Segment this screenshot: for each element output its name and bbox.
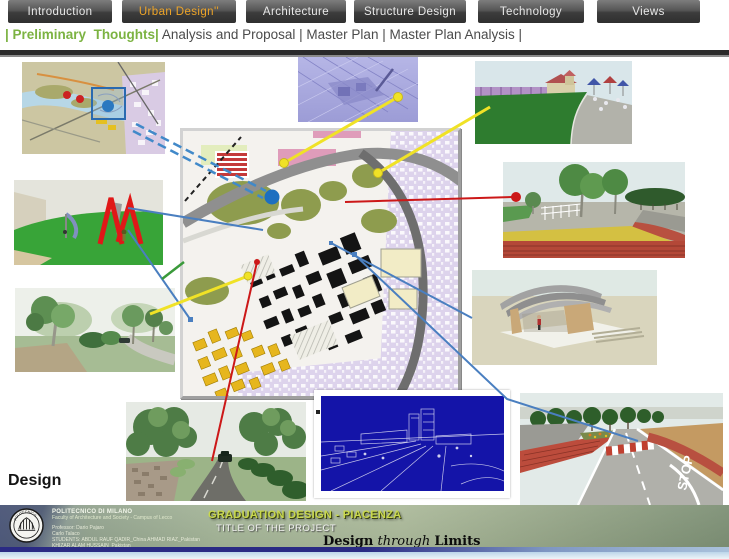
tab-technology[interactable]: Technology: [478, 0, 584, 23]
market-square-render-image: [475, 61, 632, 144]
pavilion-render-image: [472, 270, 657, 365]
tab-urban-design[interactable]: Urban Design'': [122, 0, 236, 23]
project-subtitle: TITLE OF THE PROJECT: [216, 523, 336, 534]
footer-lightblue-strip: [0, 552, 729, 559]
tab-views[interactable]: Views: [597, 0, 700, 23]
divider-bar: [0, 50, 729, 57]
subnav-active-section[interactable]: | Preliminary Thoughts|: [5, 27, 159, 42]
tab-structure-design[interactable]: Structure Design: [354, 0, 466, 23]
plaza-trees-render-image: [503, 162, 685, 258]
street-render-image: STOP: [520, 393, 723, 505]
subnav-sections[interactable]: Analysis and Proposal | Master Plan | Ma…: [159, 27, 522, 42]
master-plan-map: [180, 128, 461, 399]
blueprint-wireframe-image: [314, 390, 510, 498]
tab-architecture[interactable]: Architecture: [246, 0, 346, 23]
tab-introduction[interactable]: Introduction: [8, 0, 112, 23]
territorial-map-image: [22, 62, 165, 154]
design-label: Design: [8, 472, 61, 490]
politecnico-logo: POLITECNICO: [9, 508, 44, 543]
playground-render-image: [14, 180, 163, 265]
top-nav: Introduction Urban Design'' Architecture…: [0, 0, 729, 23]
wireframe-model-image: [298, 57, 418, 122]
institution-block: POLITECNICO DI MILANO Faculty of Archite…: [52, 509, 200, 549]
park-road-render-image: [126, 402, 306, 501]
presentation-title: GRADUATION DESIGN - PIACENZA: [208, 509, 401, 521]
footer-bar: POLITECNICO POLITECNICO DI MILANO Facult…: [0, 505, 729, 547]
breadcrumb: | Preliminary Thoughts| Analysis and Pro…: [5, 27, 522, 42]
slide: Introduction Urban Design'' Architecture…: [0, 0, 729, 559]
faculty-name: Faculty of Architecture and Society - Ca…: [52, 515, 200, 521]
park-render-image: [15, 288, 175, 372]
